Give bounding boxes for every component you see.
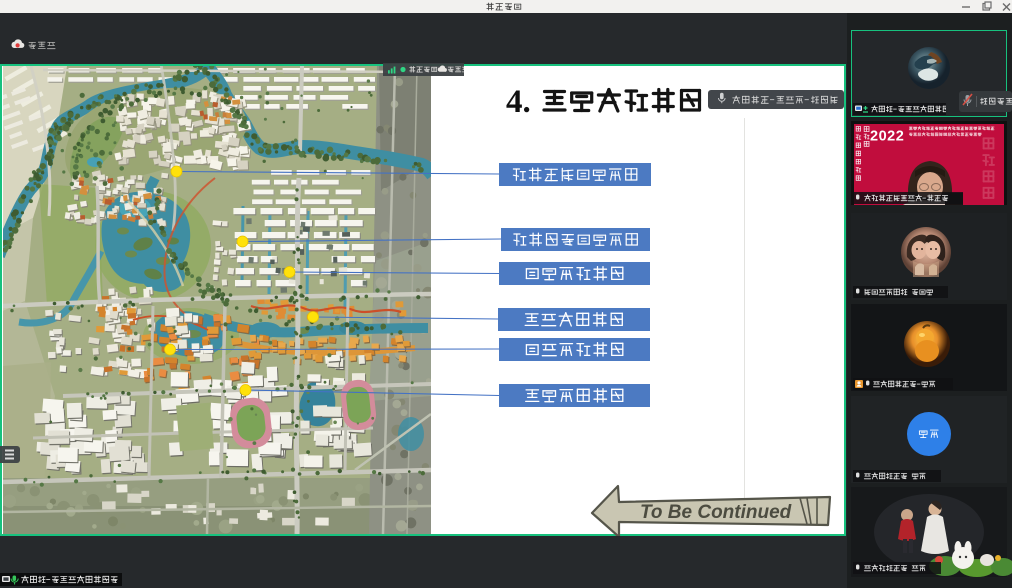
svg-text:2022: 2022 [870,129,904,145]
svg-text:To Be Continued: To Be Continued [640,502,792,523]
